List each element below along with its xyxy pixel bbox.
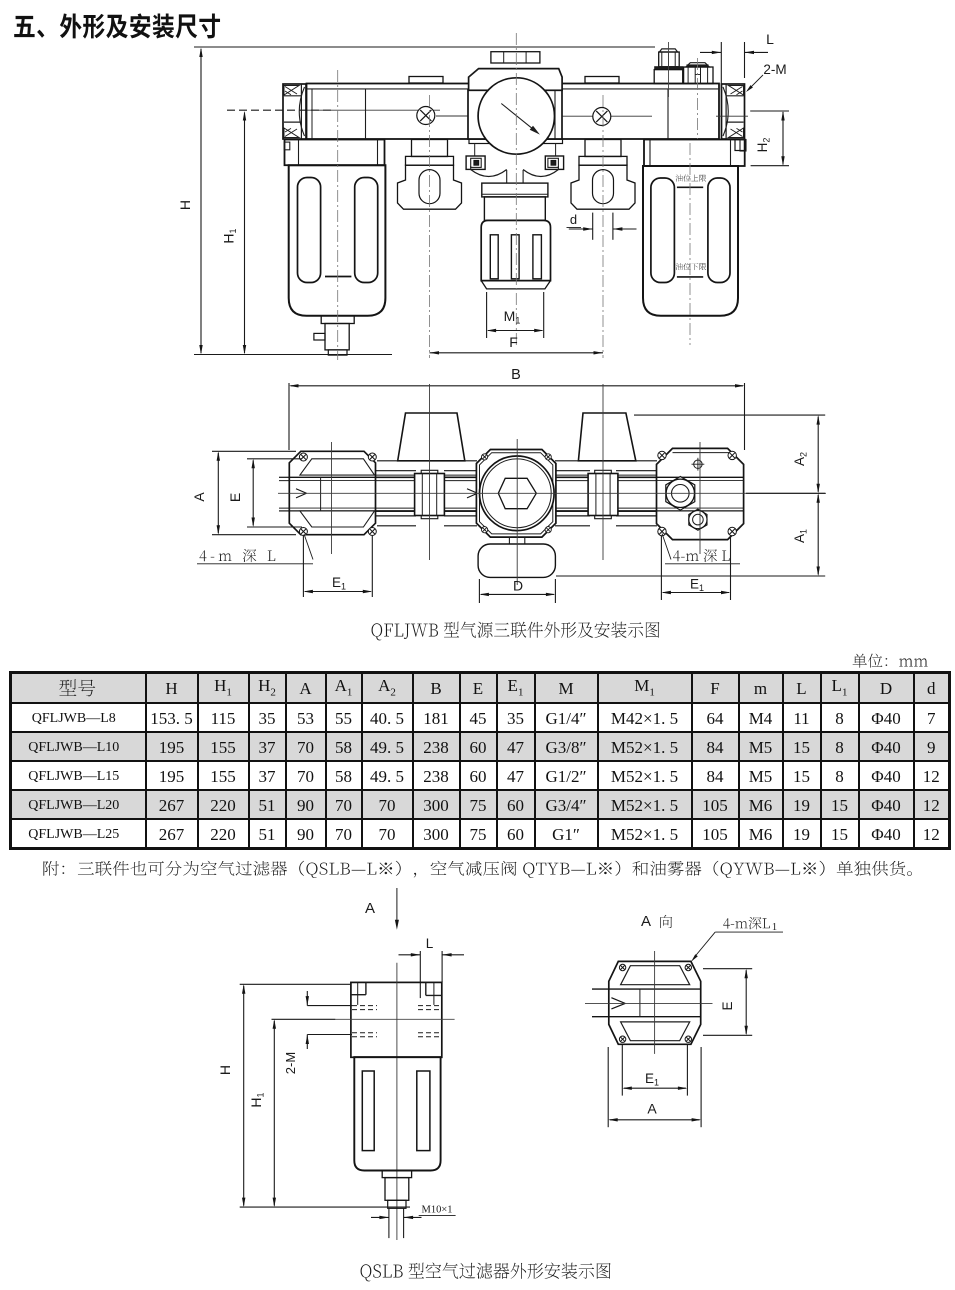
svg-text:d: d bbox=[570, 212, 577, 227]
svg-text:A: A bbox=[191, 492, 207, 502]
svg-text:B: B bbox=[511, 367, 521, 383]
svg-text:H: H bbox=[217, 1065, 233, 1075]
svg-text:H2: H2 bbox=[755, 138, 772, 153]
svg-text:A2: A2 bbox=[792, 452, 809, 466]
svg-text:E1: E1 bbox=[690, 577, 704, 594]
svg-text:2-M: 2-M bbox=[283, 1052, 298, 1074]
svg-text:A: A bbox=[641, 913, 651, 930]
svg-text:A: A bbox=[365, 900, 375, 917]
svg-text:1: 1 bbox=[772, 922, 777, 933]
svg-text:E1: E1 bbox=[332, 575, 346, 592]
svg-text:A1: A1 bbox=[792, 529, 809, 543]
svg-text:H1: H1 bbox=[221, 228, 239, 243]
svg-text:2-M: 2-M bbox=[763, 62, 786, 77]
svg-text:M1: M1 bbox=[504, 308, 521, 326]
svg-text:F: F bbox=[509, 334, 518, 350]
svg-text:H: H bbox=[177, 200, 193, 210]
svg-text:H1: H1 bbox=[248, 1092, 266, 1107]
svg-text:D: D bbox=[513, 578, 523, 594]
svg-text:E: E bbox=[720, 1001, 735, 1010]
svg-text:L: L bbox=[766, 31, 774, 47]
svg-text:E: E bbox=[227, 493, 243, 502]
svg-text:M10×1: M10×1 bbox=[421, 1205, 452, 1216]
svg-text:A: A bbox=[647, 1101, 657, 1117]
svg-text:E1: E1 bbox=[645, 1071, 659, 1088]
svg-text:L: L bbox=[426, 936, 434, 951]
